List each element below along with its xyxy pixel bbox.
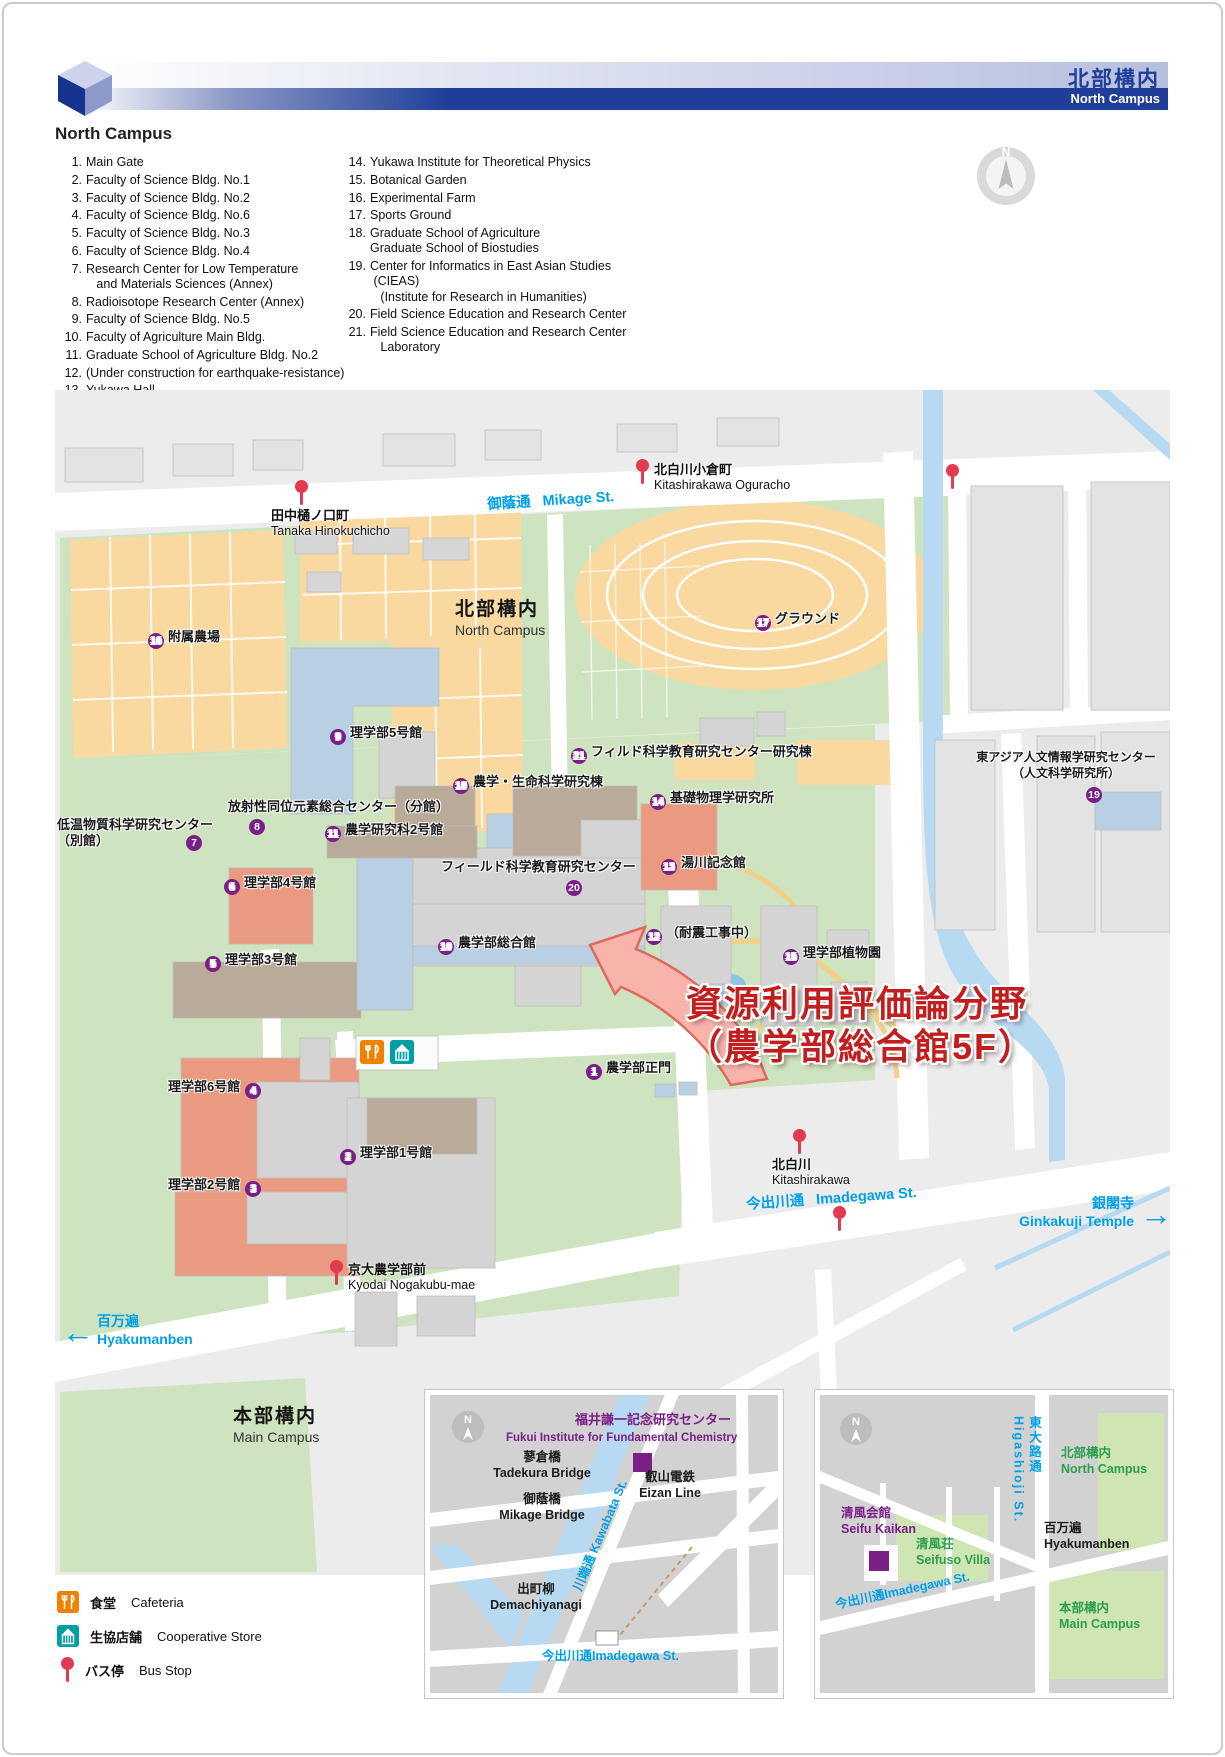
legend-item-number: 19. (342, 259, 366, 305)
svg-text:N: N (464, 1414, 472, 1426)
legend-label-jp: バス停 (85, 1661, 124, 1680)
legend-item-text: Faculty of Science Bldg. No.2 (86, 191, 250, 206)
legend-item-text: Main Gate (86, 155, 144, 170)
inset-text-tadekura: 蓼倉橋 Tadekura Bridge (488, 1450, 596, 1481)
legend-item: 6.Faculty of Science Bldg. No.4 (58, 244, 348, 259)
legend-item: 3.Faculty of Science Bldg. No.2 (58, 191, 348, 206)
legend-item-text: Botanical Garden (370, 173, 467, 188)
legend-item-text: Experimental Farm (370, 191, 476, 206)
building-4 (181, 1058, 359, 1204)
inset-text-main-campus2: 本部構内 Main Campus (1059, 1601, 1140, 1632)
svg-text:N: N (1002, 145, 1011, 159)
legend-item: 8.Radioisotope Research Center (Annex) (58, 295, 348, 310)
svg-text:N: N (852, 1416, 860, 1428)
building-6 (229, 868, 313, 944)
legend-item-number: 14. (342, 155, 366, 170)
legend-item-text: Center for Informatics in East Asian Stu… (370, 259, 611, 305)
building-12 (761, 906, 817, 1026)
legend-item-text: Faculty of Agriculture Main Bldg. (86, 330, 265, 345)
seifu-kaikan-marker (869, 1551, 889, 1571)
legend-item-number: 6. (58, 244, 82, 259)
legend-item: 7.Research Center for Low Temperature an… (58, 262, 348, 293)
legend-item: 20.Field Science Education and Research … (342, 307, 652, 322)
legend-item-text: Field Science Education and Research Cen… (370, 325, 626, 356)
legend-item: 2.Faculty of Science Bldg. No.1 (58, 173, 348, 188)
page-title-jp: 北部構内 (1068, 63, 1160, 93)
cube-logo-icon (55, 58, 115, 118)
legend-item-text: Field Science Education and Research Cen… (370, 307, 626, 322)
legend-row-coop: 生協店舗Cooperative Store (57, 1624, 262, 1648)
inset-text-fukui-en: Fukui Institute for Fundamental Chemistr… (506, 1431, 737, 1447)
legend-item-number: 17. (342, 208, 366, 223)
legend-item-number: 15. (342, 173, 366, 188)
legend-row-bus: バス停Bus Stop (57, 1658, 262, 1682)
legend-item-text: Radioisotope Research Center (Annex) (86, 295, 304, 310)
legend-item-number: 5. (58, 226, 82, 241)
building-2 (347, 1098, 495, 1268)
legend-item-text: (Under construction for earthquake-resis… (86, 366, 344, 381)
inset-text-mikage-bridge: 御蔭橋 Mikage Bridge (486, 1492, 598, 1523)
legend-item: 11.Graduate School of Agriculture Bldg. … (58, 348, 348, 363)
legend-item: 17.Sports Ground (342, 208, 652, 223)
inset-text-fukui-jp: 福井謙一記念研究センター (575, 1412, 731, 1428)
coop-store-icon (390, 1040, 414, 1064)
legend-item-number: 10. (58, 330, 82, 345)
legend-item-number: 16. (342, 191, 366, 206)
legend-item: 16.Experimental Farm (342, 191, 652, 206)
legend-item-number: 8. (58, 295, 82, 310)
legend-item-text: Research Center for Low Temperature and … (86, 262, 298, 293)
legend-item: 9.Faculty of Science Bldg. No.5 (58, 312, 348, 327)
legend-item-text: Yukawa Institute for Theoretical Physics (370, 155, 591, 170)
building-19 (1095, 792, 1161, 830)
legend-item: 18.Graduate School of Agriculture Gradua… (342, 226, 652, 257)
legend-item-number: 12. (58, 366, 82, 381)
legend-label-en: Cooperative Store (157, 1629, 262, 1644)
legend-column-2: 14.Yukawa Institute for Theoretical Phys… (342, 155, 652, 358)
legend-item-text: Faculty of Science Bldg. No.3 (86, 226, 250, 241)
legend-column-1: 1.Main Gate2.Faculty of Science Bldg. No… (58, 155, 348, 401)
legend-row-cafeteria: 食堂Cafeteria (57, 1590, 262, 1614)
legend-item: 5.Faculty of Science Bldg. No.3 (58, 226, 348, 241)
header-gradient-bar (80, 62, 1168, 88)
legend-item-text: Graduate School of Agriculture Graduate … (370, 226, 540, 257)
inset-text-hyakumanben2: 百万遍 Hyakumanben (1044, 1521, 1129, 1552)
legend-item-text: Faculty of Science Bldg. No.1 (86, 173, 250, 188)
inset-text-eizan-line: 叡山電鉄 Eizan Line (624, 1470, 716, 1501)
page-title-en: North Campus (1070, 91, 1160, 106)
legend-item: 19.Center for Informatics in East Asian … (342, 259, 652, 305)
legend-item: 10.Faculty of Agriculture Main Bldg. (58, 330, 348, 345)
legend-item-number: 18. (342, 226, 366, 257)
legend-item-number: 21. (342, 325, 366, 356)
inset-text-imadegawa-1: 今出川通Imadegawa St. (542, 1649, 679, 1665)
legend-item-number: 11. (58, 348, 82, 363)
bus-stop-pin-icon (61, 1657, 74, 1684)
legend-item: 4.Faculty of Science Bldg. No.6 (58, 208, 348, 223)
header-dark-bar (80, 88, 1168, 110)
building-5 (173, 962, 361, 1018)
inset-text-seifuso-villa: 清風荘 Seifuso Villa (916, 1537, 990, 1568)
list-heading: North Campus (55, 124, 172, 144)
building-14 (641, 804, 717, 890)
legend-item-number: 4. (58, 208, 82, 223)
legend-label-jp: 生協店舗 (90, 1627, 142, 1646)
inset-text-higashioji-st: 東大路通 Higashioji St. (1010, 1416, 1041, 1574)
legend-item-number: 20. (342, 307, 366, 322)
legend-item-text: Sports Ground (370, 208, 451, 223)
legend-item: 14.Yukawa Institute for Theoretical Phys… (342, 155, 652, 170)
demachiyanagi-station (596, 1631, 618, 1645)
cafeteria-icon (360, 1040, 384, 1064)
legend-item: 1.Main Gate (58, 155, 348, 170)
legend-item-text: Faculty of Science Bldg. No.6 (86, 208, 250, 223)
legend-item-number: 7. (58, 262, 82, 293)
campus-map-page: { "header": {"title_jp": "北部構内", "title_… (0, 0, 1225, 1757)
building-3 (175, 1192, 359, 1276)
legend-item-text: Graduate School of Agriculture Bldg. No.… (86, 348, 318, 363)
legend-label-en: Cafeteria (131, 1595, 184, 1610)
sports-ground-oval (575, 500, 935, 690)
legend-item-number: 9. (58, 312, 82, 327)
legend-item-number: 3. (58, 191, 82, 206)
legend-item-text: Faculty of Science Bldg. No.4 (86, 244, 250, 259)
legend-label-en: Bus Stop (139, 1663, 192, 1678)
legend-item: 21.Field Science Education and Research … (342, 325, 652, 356)
inset-text-north-campus2: 北部構内 North Campus (1061, 1446, 1147, 1477)
legend-item: 15.Botanical Garden (342, 173, 652, 188)
cafeteria-icon (57, 1591, 79, 1613)
compass-icon: N (975, 145, 1037, 207)
coop-icon (57, 1625, 79, 1647)
compass-icon: N (450, 1409, 486, 1445)
compass-icon: N (838, 1411, 874, 1447)
inset-text-seifu-kaikan: 清風会館 Seifu Kaikan (841, 1506, 916, 1537)
legend-item-number: 1. (58, 155, 82, 170)
legend-item: 12.(Under construction for earthquake-re… (58, 366, 348, 381)
symbol-legend: 食堂Cafeteria生協店舗Cooperative Storeバス停Bus S… (57, 1590, 262, 1692)
inset-text-demachiyanagi: 出町柳 Demachiyanagi (478, 1582, 594, 1613)
legend-item-text: Faculty of Science Bldg. No.5 (86, 312, 250, 327)
legend-label-jp: 食堂 (90, 1593, 116, 1612)
legend-item-number: 2. (58, 173, 82, 188)
